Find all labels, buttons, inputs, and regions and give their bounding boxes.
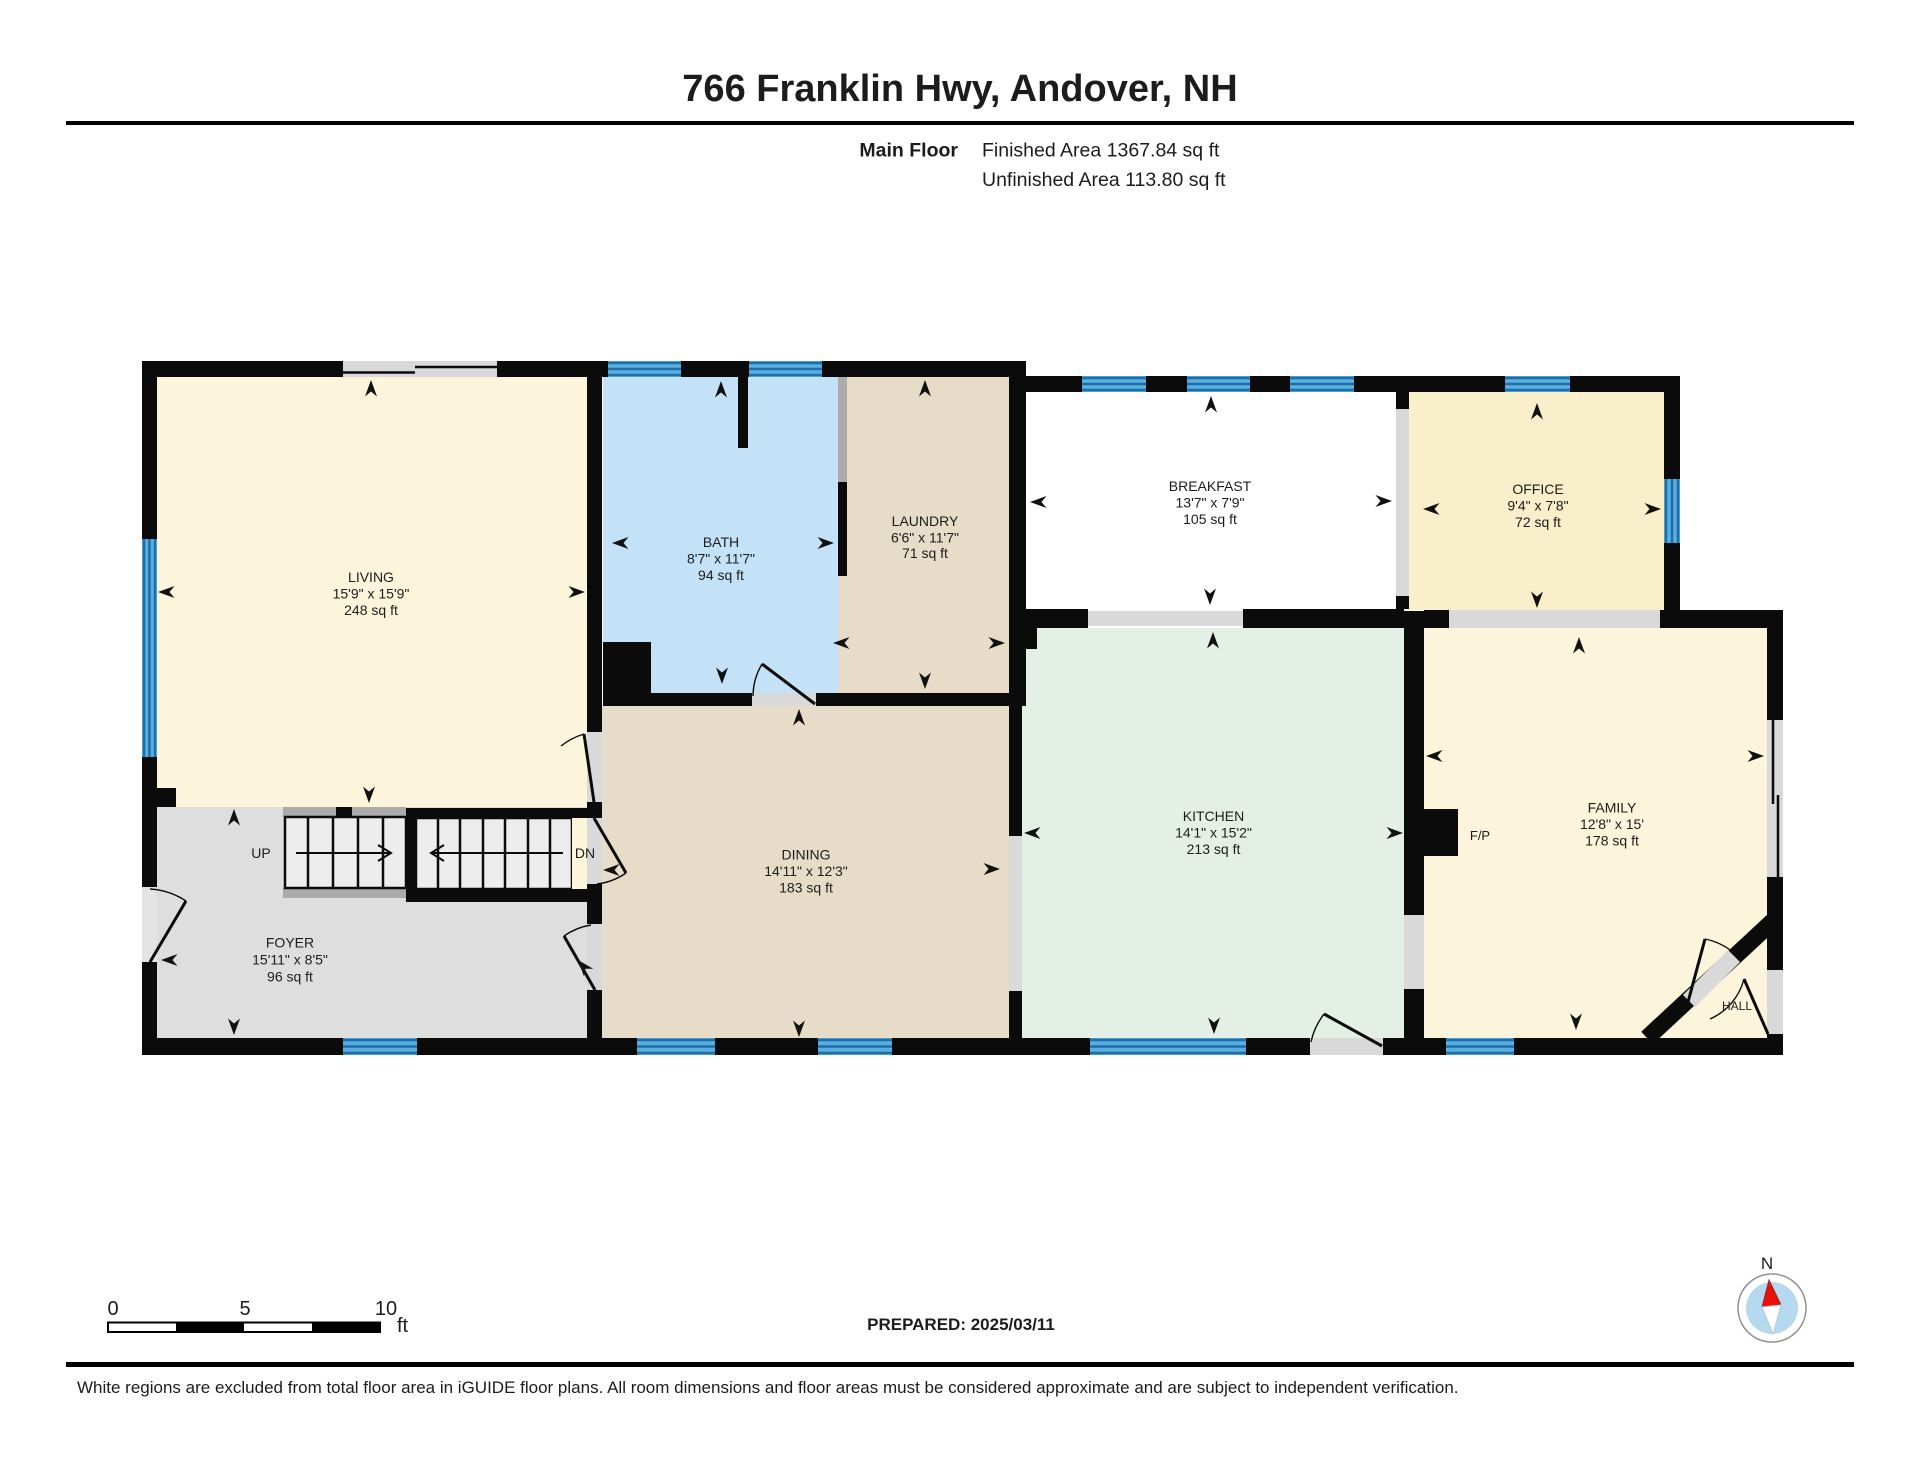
svg-text:0: 0: [107, 1298, 118, 1320]
svg-text:248 sq ft: 248 sq ft: [344, 602, 398, 618]
svg-text:8'7" x 11'7": 8'7" x 11'7": [687, 551, 755, 567]
svg-text:766 Franklin Hwy, Andover, NH: 766 Franklin Hwy, Andover, NH: [682, 68, 1237, 110]
svg-text:KITCHEN: KITCHEN: [1183, 808, 1244, 824]
svg-text:105 sq ft: 105 sq ft: [1183, 511, 1237, 527]
svg-text:96 sq ft: 96 sq ft: [267, 969, 313, 985]
svg-text:DINING: DINING: [782, 847, 831, 863]
svg-text:15'11" x 8'5": 15'11" x 8'5": [252, 952, 328, 968]
svg-text:OFFICE: OFFICE: [1512, 481, 1563, 497]
svg-text:Finished Area 1367.84 sq ft: Finished Area 1367.84 sq ft: [982, 140, 1220, 162]
svg-text:F/P: F/P: [1470, 828, 1490, 843]
svg-text:DN: DN: [575, 845, 595, 861]
svg-text:PREPARED: 2025/03/11: PREPARED: 2025/03/11: [867, 1315, 1055, 1334]
svg-text:15'9" x 15'9": 15'9" x 15'9": [333, 586, 410, 602]
svg-text:10: 10: [375, 1298, 397, 1320]
svg-text:N: N: [1761, 1254, 1773, 1273]
svg-text:UP: UP: [251, 845, 270, 861]
svg-text:ft: ft: [397, 1315, 409, 1337]
svg-text:5: 5: [239, 1298, 250, 1320]
svg-text:12'8" x 15': 12'8" x 15': [1580, 816, 1644, 832]
svg-text:FAMILY: FAMILY: [1588, 800, 1637, 816]
svg-text:LIVING: LIVING: [348, 569, 394, 585]
svg-text:LAUNDRY: LAUNDRY: [892, 513, 959, 529]
svg-text:HALL: HALL: [1722, 999, 1752, 1013]
svg-text:13'7" x 7'9": 13'7" x 7'9": [1176, 495, 1245, 511]
svg-text:Unfinished Area 113.80 sq ft: Unfinished Area 113.80 sq ft: [982, 169, 1226, 191]
svg-text:14'11" x 12'3": 14'11" x 12'3": [764, 863, 848, 879]
svg-text:6'6" x 11'7": 6'6" x 11'7": [891, 530, 959, 546]
svg-text:9'4" x 7'8": 9'4" x 7'8": [1507, 498, 1568, 514]
svg-text:213 sq ft: 213 sq ft: [1187, 841, 1241, 857]
svg-text:FOYER: FOYER: [266, 935, 314, 951]
svg-text:94 sq ft: 94 sq ft: [698, 567, 744, 583]
svg-text:White regions are excluded fro: White regions are excluded from total fl…: [77, 1378, 1459, 1397]
svg-text:72 sq ft: 72 sq ft: [1515, 514, 1561, 530]
svg-text:178 sq ft: 178 sq ft: [1585, 833, 1639, 849]
svg-text:183 sq ft: 183 sq ft: [779, 880, 833, 896]
svg-text:14'1" x 15'2": 14'1" x 15'2": [1175, 825, 1252, 841]
svg-text:Main Floor: Main Floor: [859, 140, 958, 162]
svg-text:71 sq ft: 71 sq ft: [902, 545, 948, 561]
svg-text:BATH: BATH: [703, 534, 739, 550]
svg-text:BREAKFAST: BREAKFAST: [1169, 478, 1252, 494]
